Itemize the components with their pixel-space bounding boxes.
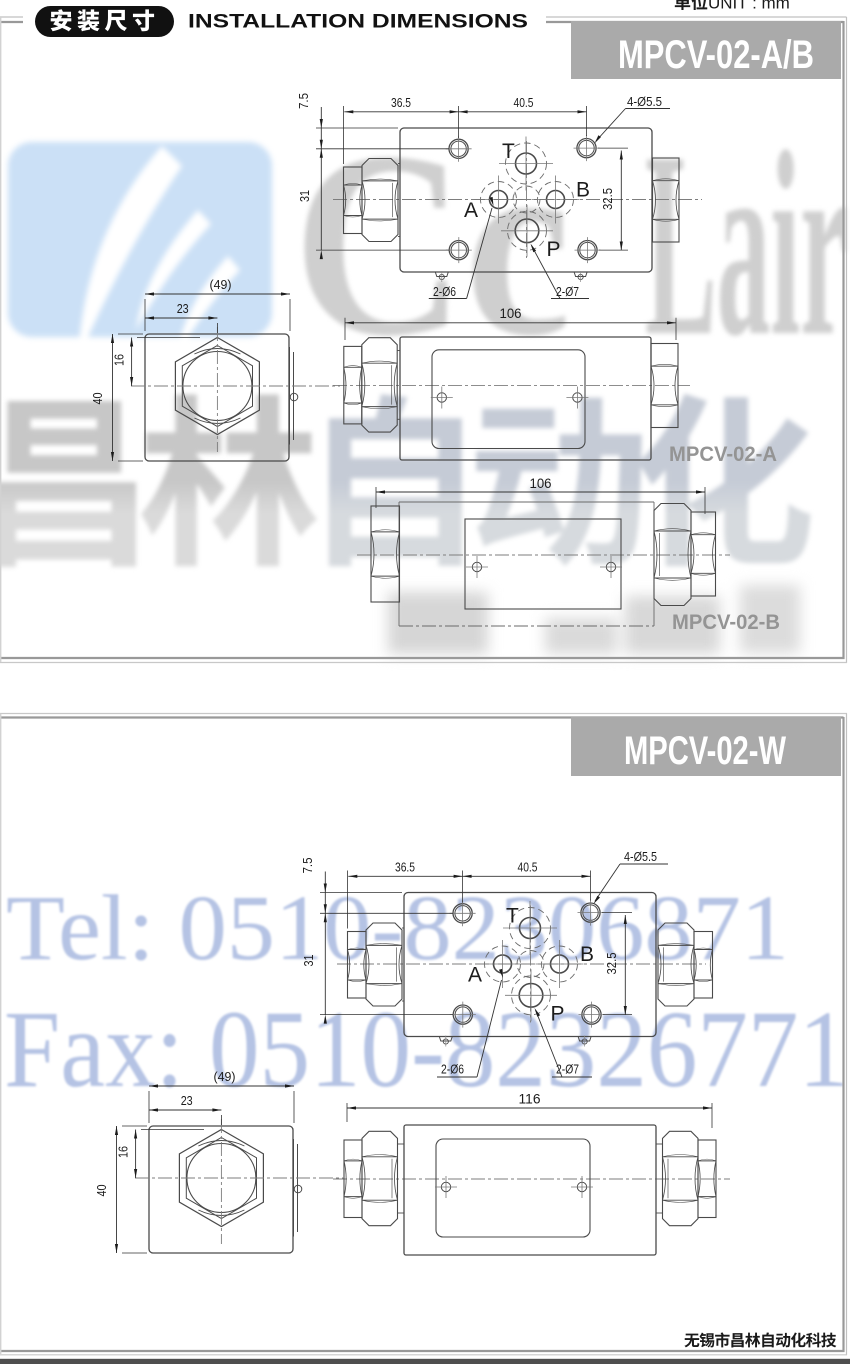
svg-text:Fax: 0510-82326771: Fax: 0510-82326771 [4, 988, 849, 1110]
svg-text:32.5: 32.5 [600, 188, 615, 210]
svg-text:23: 23 [177, 301, 189, 316]
svg-text:31: 31 [301, 955, 316, 967]
svg-text:40: 40 [90, 393, 105, 405]
svg-text:106: 106 [530, 476, 552, 491]
svg-text:31: 31 [297, 190, 312, 202]
svg-text:MPCV-02-B: MPCV-02-B [672, 611, 780, 634]
svg-text:MPCV-02-A/B: MPCV-02-A/B [618, 33, 814, 77]
svg-text:36.5: 36.5 [391, 95, 411, 110]
svg-text:2-Ø7: 2-Ø7 [556, 1062, 579, 1077]
svg-text:4-Ø5.5: 4-Ø5.5 [627, 94, 662, 109]
svg-text:7.5: 7.5 [300, 858, 315, 874]
svg-text:7.5: 7.5 [296, 93, 311, 109]
svg-text:B: B [576, 179, 590, 202]
svg-text:36.5: 36.5 [395, 860, 415, 875]
svg-text:T: T [506, 905, 519, 928]
svg-text:(49): (49) [214, 1069, 236, 1084]
svg-text:P: P [547, 238, 561, 261]
svg-text:MPCV-02-A: MPCV-02-A [669, 443, 777, 466]
svg-text:A: A [468, 964, 482, 987]
svg-text:106: 106 [500, 306, 522, 321]
svg-text:40: 40 [94, 1185, 109, 1197]
svg-text:2-Ø6: 2-Ø6 [441, 1062, 464, 1077]
svg-text:B: B [580, 943, 594, 966]
svg-text:16: 16 [112, 354, 127, 366]
svg-text:40.5: 40.5 [518, 860, 538, 875]
svg-text:4-Ø5.5: 4-Ø5.5 [624, 849, 657, 864]
svg-text:116: 116 [519, 1092, 541, 1107]
svg-text:Lair: Lair [645, 98, 848, 391]
svg-text:MPCV-02-W: MPCV-02-W [624, 729, 786, 773]
svg-text:UNIT : mm: UNIT : mm [708, 0, 790, 13]
svg-text:A: A [464, 199, 478, 222]
svg-text:32.5: 32.5 [604, 953, 619, 975]
svg-text:(49): (49) [210, 277, 232, 292]
svg-text:2-Ø6: 2-Ø6 [433, 284, 456, 299]
svg-text:16: 16 [116, 1146, 131, 1158]
svg-text:T: T [502, 140, 515, 163]
svg-text:40.5: 40.5 [514, 95, 534, 110]
svg-text:P: P [551, 1003, 565, 1026]
svg-text:Cc: Cc [293, 98, 571, 391]
svg-text:INSTALLATION DIMENSIONS: INSTALLATION DIMENSIONS [188, 11, 528, 33]
svg-text:23: 23 [181, 1093, 193, 1108]
